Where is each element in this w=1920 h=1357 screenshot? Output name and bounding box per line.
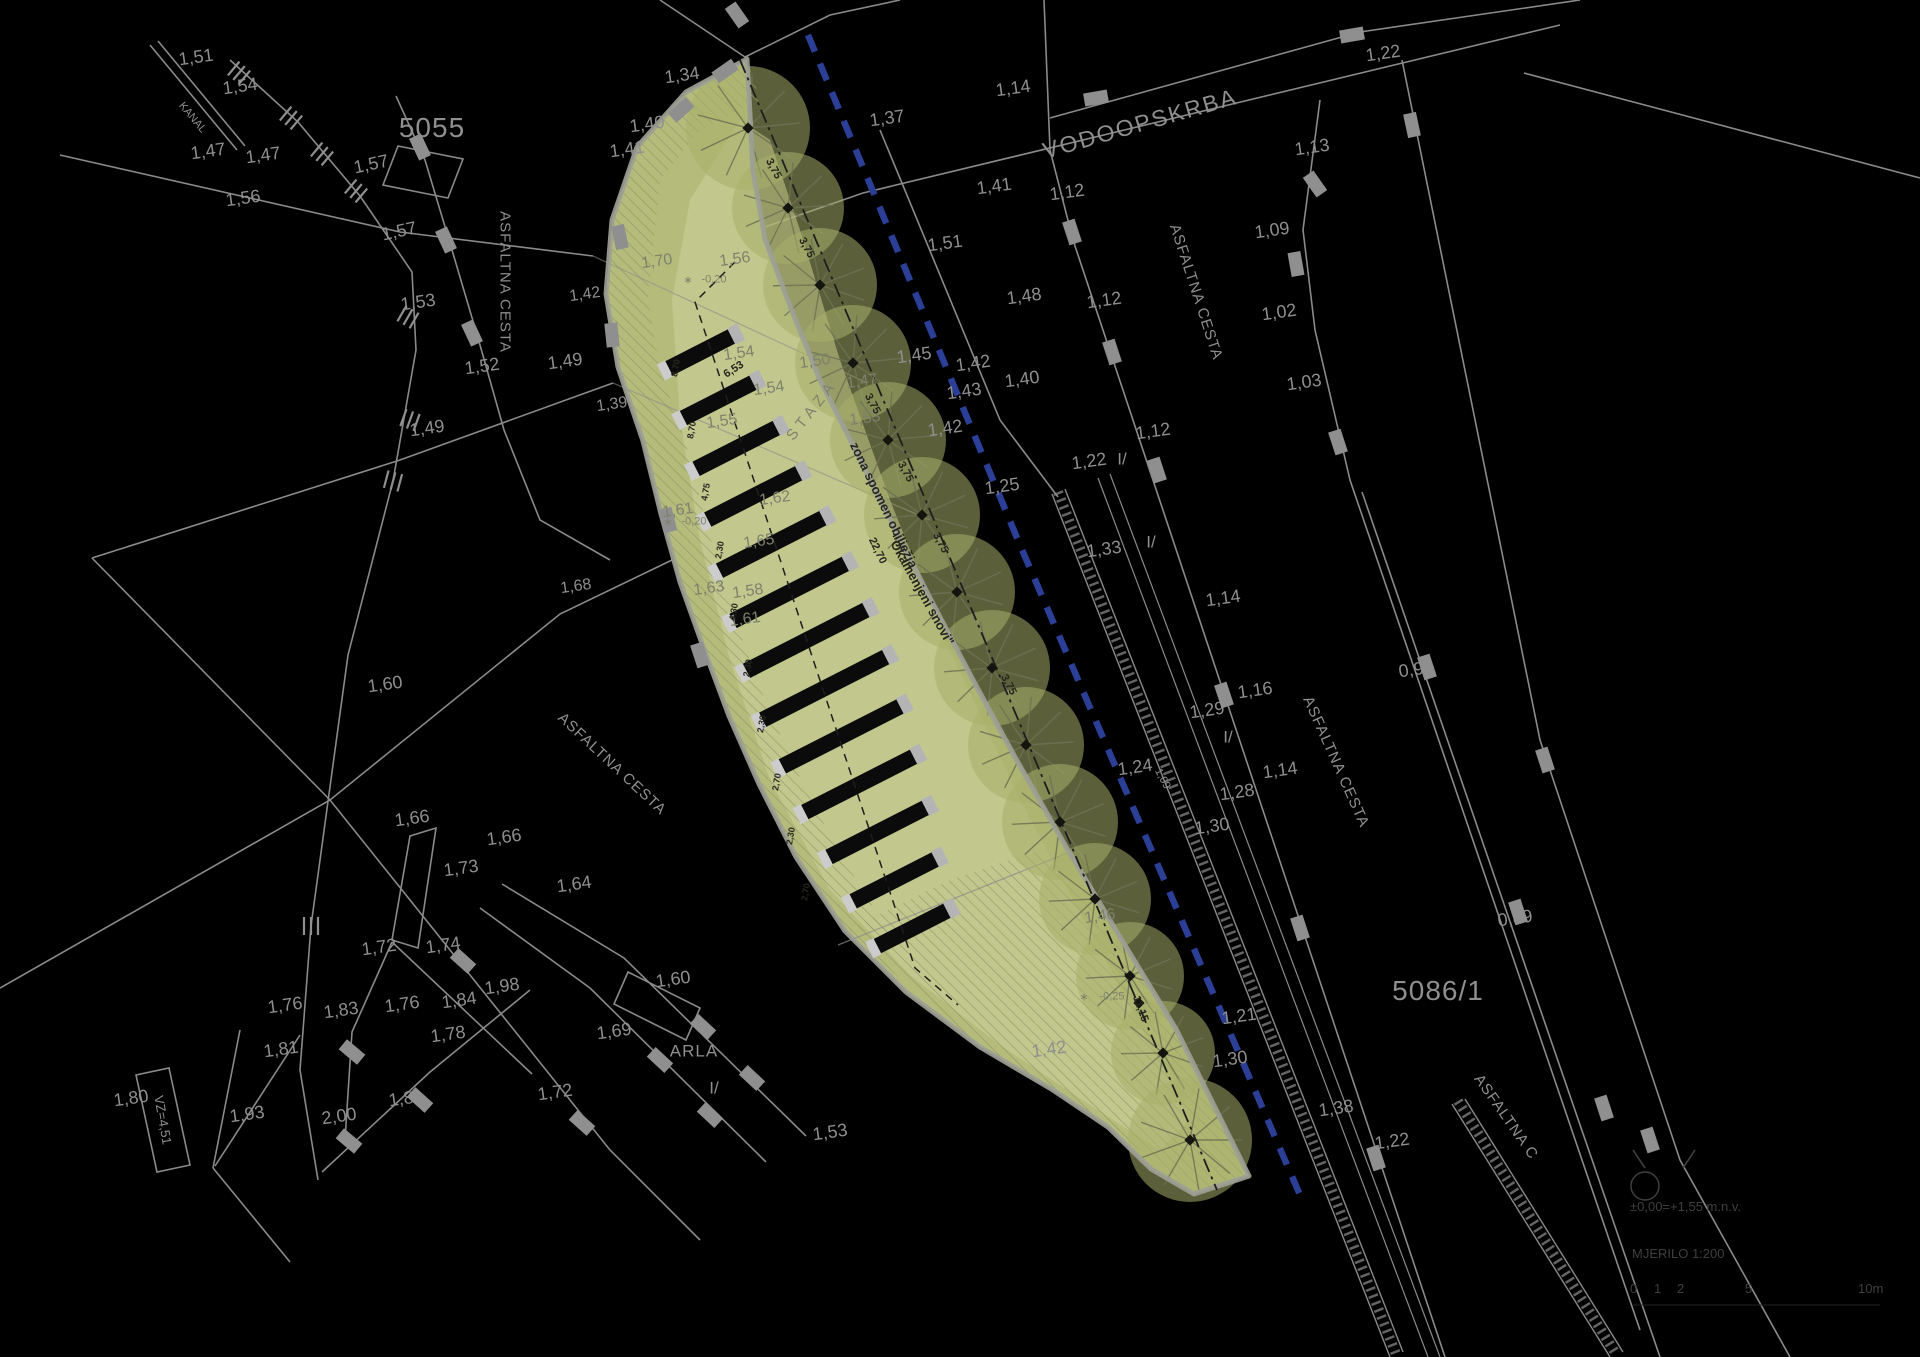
scale-bar: 012510m [1630,1281,1890,1297]
scale-bar-tick: 2 [1677,1281,1684,1296]
road-marker [1417,654,1437,681]
scale-bar-tick: 1 [1654,1281,1661,1296]
road-marker [604,322,619,347]
road-marker [1339,27,1365,44]
datum-label: ±0,00=+1,55 m.n.v. [1630,1199,1741,1214]
road-marker [336,1128,363,1153]
slope-tick [311,143,333,166]
building-outline-vz [136,1068,190,1172]
road-marker [450,948,477,974]
road-marker [1508,899,1528,926]
road-marker [461,319,483,346]
plan-canvas [0,0,1920,1357]
scale-bar-tick: 10m [1858,1281,1883,1296]
road-marker [1403,112,1421,138]
road-marker [1594,1095,1614,1122]
road-marker [1288,251,1305,277]
scale-label: MJERILO 1:200 [1632,1246,1725,1261]
road-marker [1640,1127,1660,1154]
road-marker [1290,915,1310,942]
road-marker [407,1087,434,1113]
road-marker [409,133,431,160]
road-marker [1062,219,1082,246]
kanal-line [158,41,245,146]
road-marker [725,1,749,28]
building-outline [614,972,700,1040]
road-marker [1083,90,1109,107]
road-marker [1214,682,1234,709]
slope-tick [304,917,318,935]
slope-tick [280,107,302,130]
scale-bar-tick: 0 [1630,1281,1637,1296]
scale-bar-tick: 5 [1745,1281,1752,1296]
road-marker [1102,339,1122,366]
road-marker [647,1047,673,1073]
slope-tick [228,62,250,85]
site-plan-drawing: 1,511,54KANAL1,471,471,5650551,571,571,5… [0,0,1920,1357]
road-marker [1328,429,1348,456]
road-marker [1303,170,1327,197]
slope-tick [400,409,419,431]
green-park-area [593,59,1252,1202]
road-marker [435,226,457,253]
kanal-line [150,45,237,150]
building-outline [392,828,436,948]
benchmark-circle-icon [1631,1172,1659,1200]
road-marker [1535,747,1555,774]
slope-tick [384,470,402,491]
road-marker [739,1065,765,1091]
